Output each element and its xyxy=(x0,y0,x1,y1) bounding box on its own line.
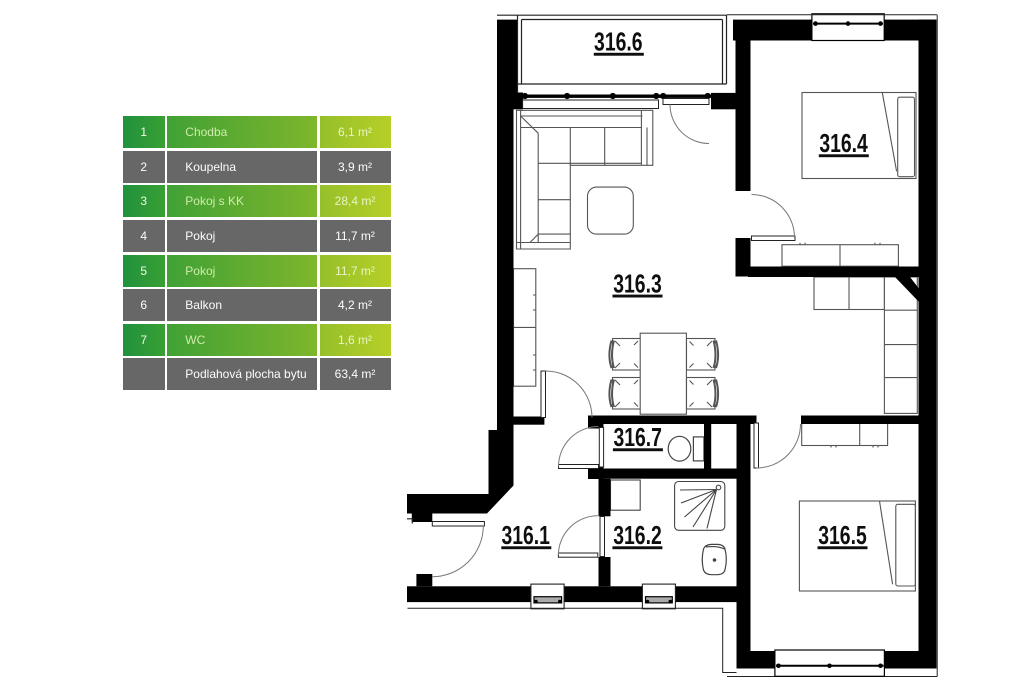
svg-text:316.6: 316.6 xyxy=(594,27,643,57)
svg-text:316.1: 316.1 xyxy=(501,520,550,550)
svg-text:316.2: 316.2 xyxy=(613,520,662,550)
svg-text:316.4: 316.4 xyxy=(819,128,868,158)
svg-text:316.7: 316.7 xyxy=(613,422,662,452)
svg-text:316.3: 316.3 xyxy=(613,268,662,298)
svg-text:316.5: 316.5 xyxy=(818,520,867,550)
